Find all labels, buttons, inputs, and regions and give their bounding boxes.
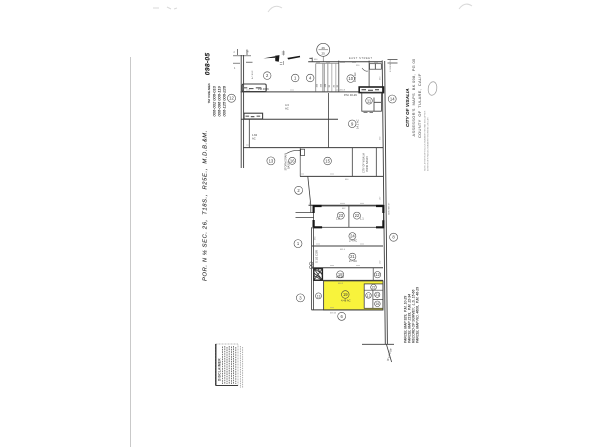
svg-text:22: 22 <box>372 286 376 290</box>
svg-text:21: 21 <box>350 254 355 259</box>
svg-text:POR. N ½ SEC. 26, T18S., R25: POR. N ½ SEC. 26, T18S., R25E., M.D.B.&M… <box>201 130 208 281</box>
svg-text:CITY OF VISALIA: CITY OF VISALIA <box>405 88 410 127</box>
svg-text:664.8: 664.8 <box>340 90 346 92</box>
svg-text:660.9: 660.9 <box>338 283 344 285</box>
svg-text:P.M. 46-29: P.M. 46-29 <box>344 93 357 97</box>
svg-text:NOTE: ASSESSOR'S BLOCK NUMBERS: NOTE: ASSESSOR'S BLOCK NUMBERS SHOWN IN … <box>424 110 427 171</box>
svg-text:DISCLAIMER: DISCLAIMER <box>217 358 221 381</box>
svg-text:ASSESSOR'S PARCEL NUMBERS SHOW: ASSESSOR'S PARCEL NUMBERS SHOWN IN CIRCL… <box>427 117 430 171</box>
svg-text:EAST STREET: EAST STREET <box>349 57 373 60</box>
svg-text:A.T.&S.F.: A.T.&S.F. <box>251 70 254 79</box>
svg-text:AC: AC <box>252 137 256 141</box>
svg-text:1.2: 1.2 <box>336 217 340 221</box>
svg-text:15: 15 <box>325 159 330 164</box>
svg-text:006-125 006-226: 006-125 006-226 <box>221 85 226 116</box>
svg-text:659.53: 659.53 <box>330 312 337 314</box>
svg-text:1.84: 1.84 <box>252 133 258 137</box>
svg-text:14.1 AC: 14.1 AC <box>356 119 360 129</box>
svg-text:25: 25 <box>322 52 326 56</box>
svg-text:098-05: 098-05 <box>204 53 211 76</box>
svg-text:S 1/2 COR: S 1/2 COR <box>315 250 319 263</box>
svg-text:4.48 AC: 4.48 AC <box>341 299 351 303</box>
svg-text:POND BASIN: POND BASIN <box>366 156 369 172</box>
svg-text:17: 17 <box>367 294 371 298</box>
svg-text:13: 13 <box>317 294 321 298</box>
svg-text:26: 26 <box>322 46 326 50</box>
svg-text:2.7 AC: 2.7 AC <box>349 259 357 263</box>
svg-text:12: 12 <box>229 96 234 101</box>
svg-text:1.1: 1.1 <box>360 217 364 221</box>
svg-text:N GIDDINGS: N GIDDINGS <box>390 59 392 72</box>
svg-text:ASSESSOR'S MAPS BK 098, PG: ASSESSOR'S MAPS BK 098, PG 05 <box>411 58 416 136</box>
svg-text:COUNTY OF TULARE, CALIF: COUNTY OF TULARE, CALIF <box>417 73 422 138</box>
svg-text:4.3: 4.3 <box>285 103 289 107</box>
svg-text:11: 11 <box>367 98 372 103</box>
svg-text:16: 16 <box>376 302 380 306</box>
svg-text:1.9 AC: 1.9 AC <box>336 275 344 279</box>
svg-text:12: 12 <box>375 272 380 277</box>
svg-text:2.4 AC: 2.4 AC <box>349 239 357 243</box>
svg-text:CENTER ST: CENTER ST <box>389 202 391 215</box>
svg-text:24: 24 <box>350 234 355 239</box>
svg-text:10: 10 <box>348 76 353 81</box>
svg-text:PARCEL MAP NO. 4606, P.M. 46-: PARCEL MAP NO. 4606, P.M. 46-29 <box>416 287 420 343</box>
svg-text:661.4: 661.4 <box>340 249 346 251</box>
svg-text:19: 19 <box>343 292 348 297</box>
svg-text:4.05 AC: 4.05 AC <box>353 72 357 82</box>
svg-text:13: 13 <box>269 158 274 163</box>
svg-text:14: 14 <box>390 97 395 102</box>
svg-text:AC: AC <box>285 107 289 111</box>
svg-text:21: 21 <box>375 293 379 297</box>
svg-text:16: 16 <box>290 158 295 163</box>
svg-text:PM 4606: PM 4606 <box>258 87 269 91</box>
